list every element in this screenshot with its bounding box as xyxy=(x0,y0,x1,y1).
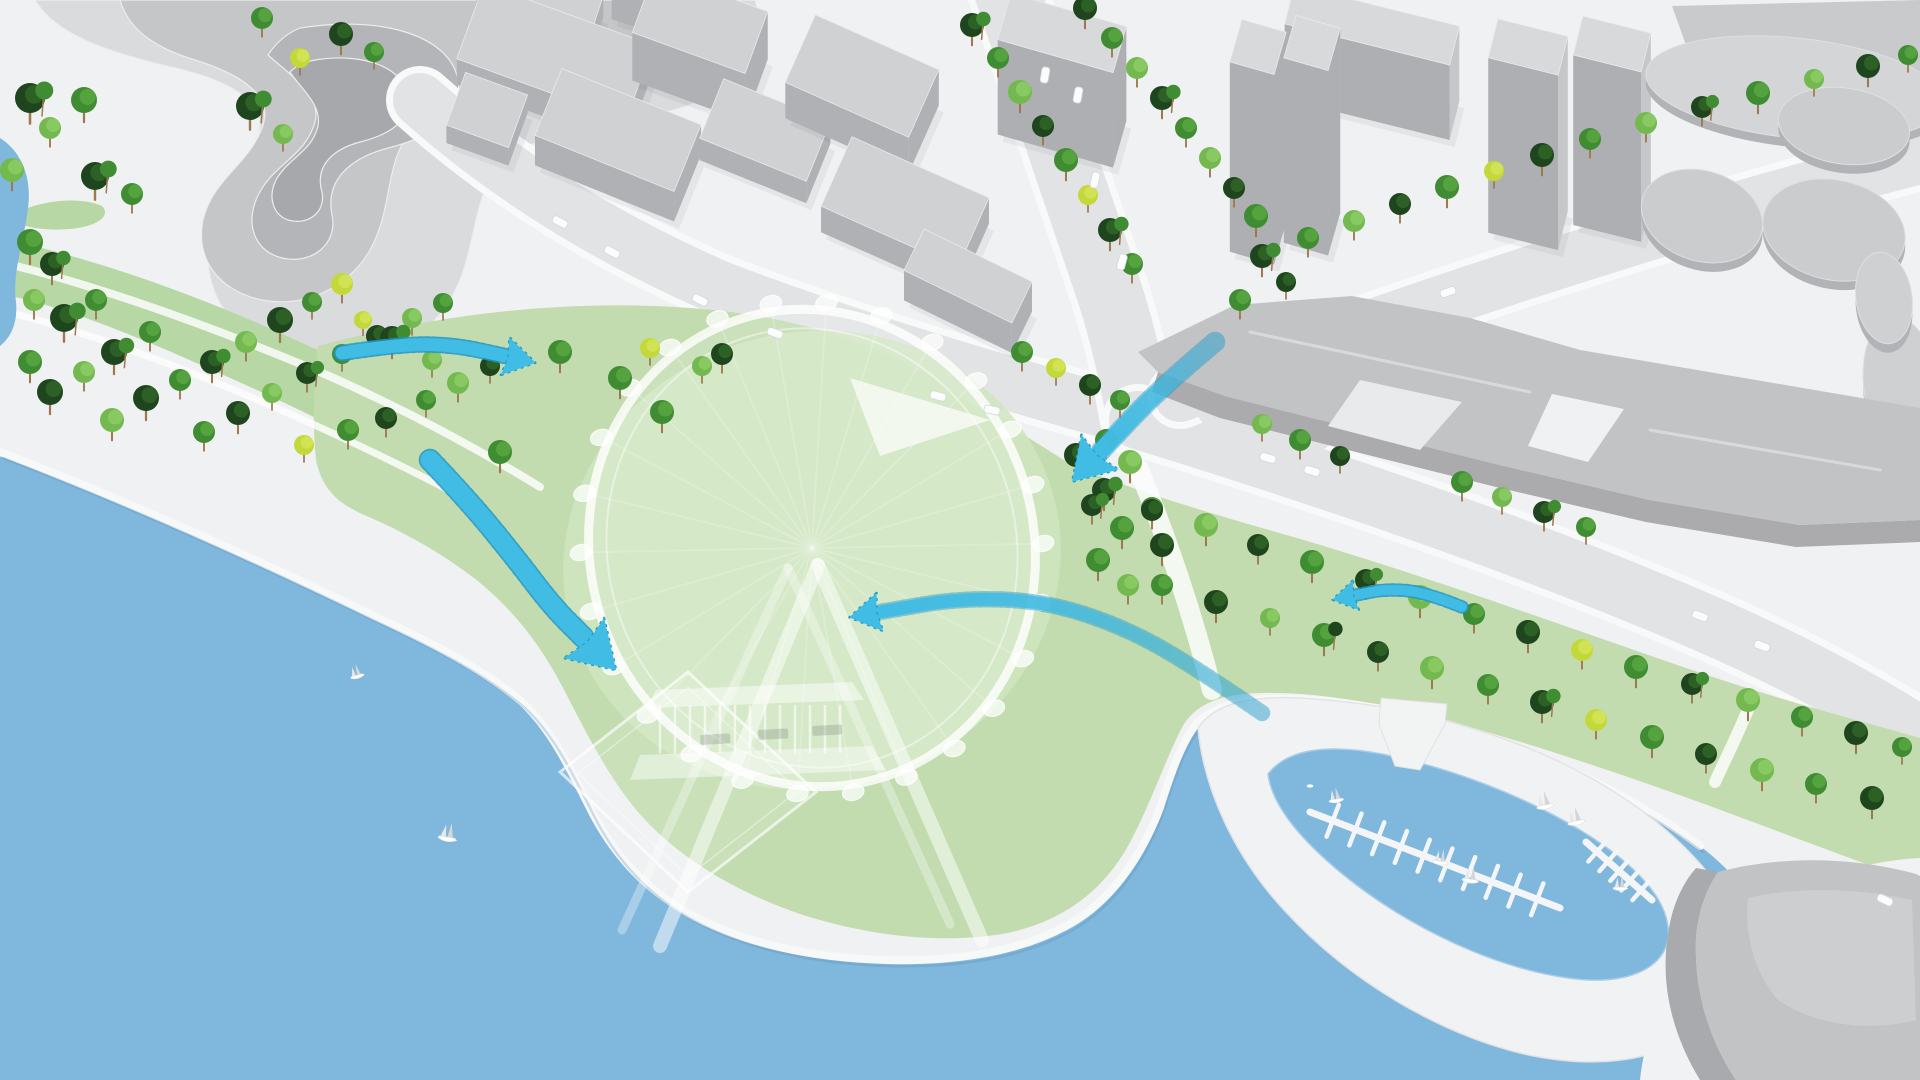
site-plan-canvas xyxy=(0,0,1920,1080)
corner-building xyxy=(1640,858,1920,1080)
masterplan-rendering xyxy=(0,0,1920,1080)
sailboat xyxy=(1307,784,1314,787)
